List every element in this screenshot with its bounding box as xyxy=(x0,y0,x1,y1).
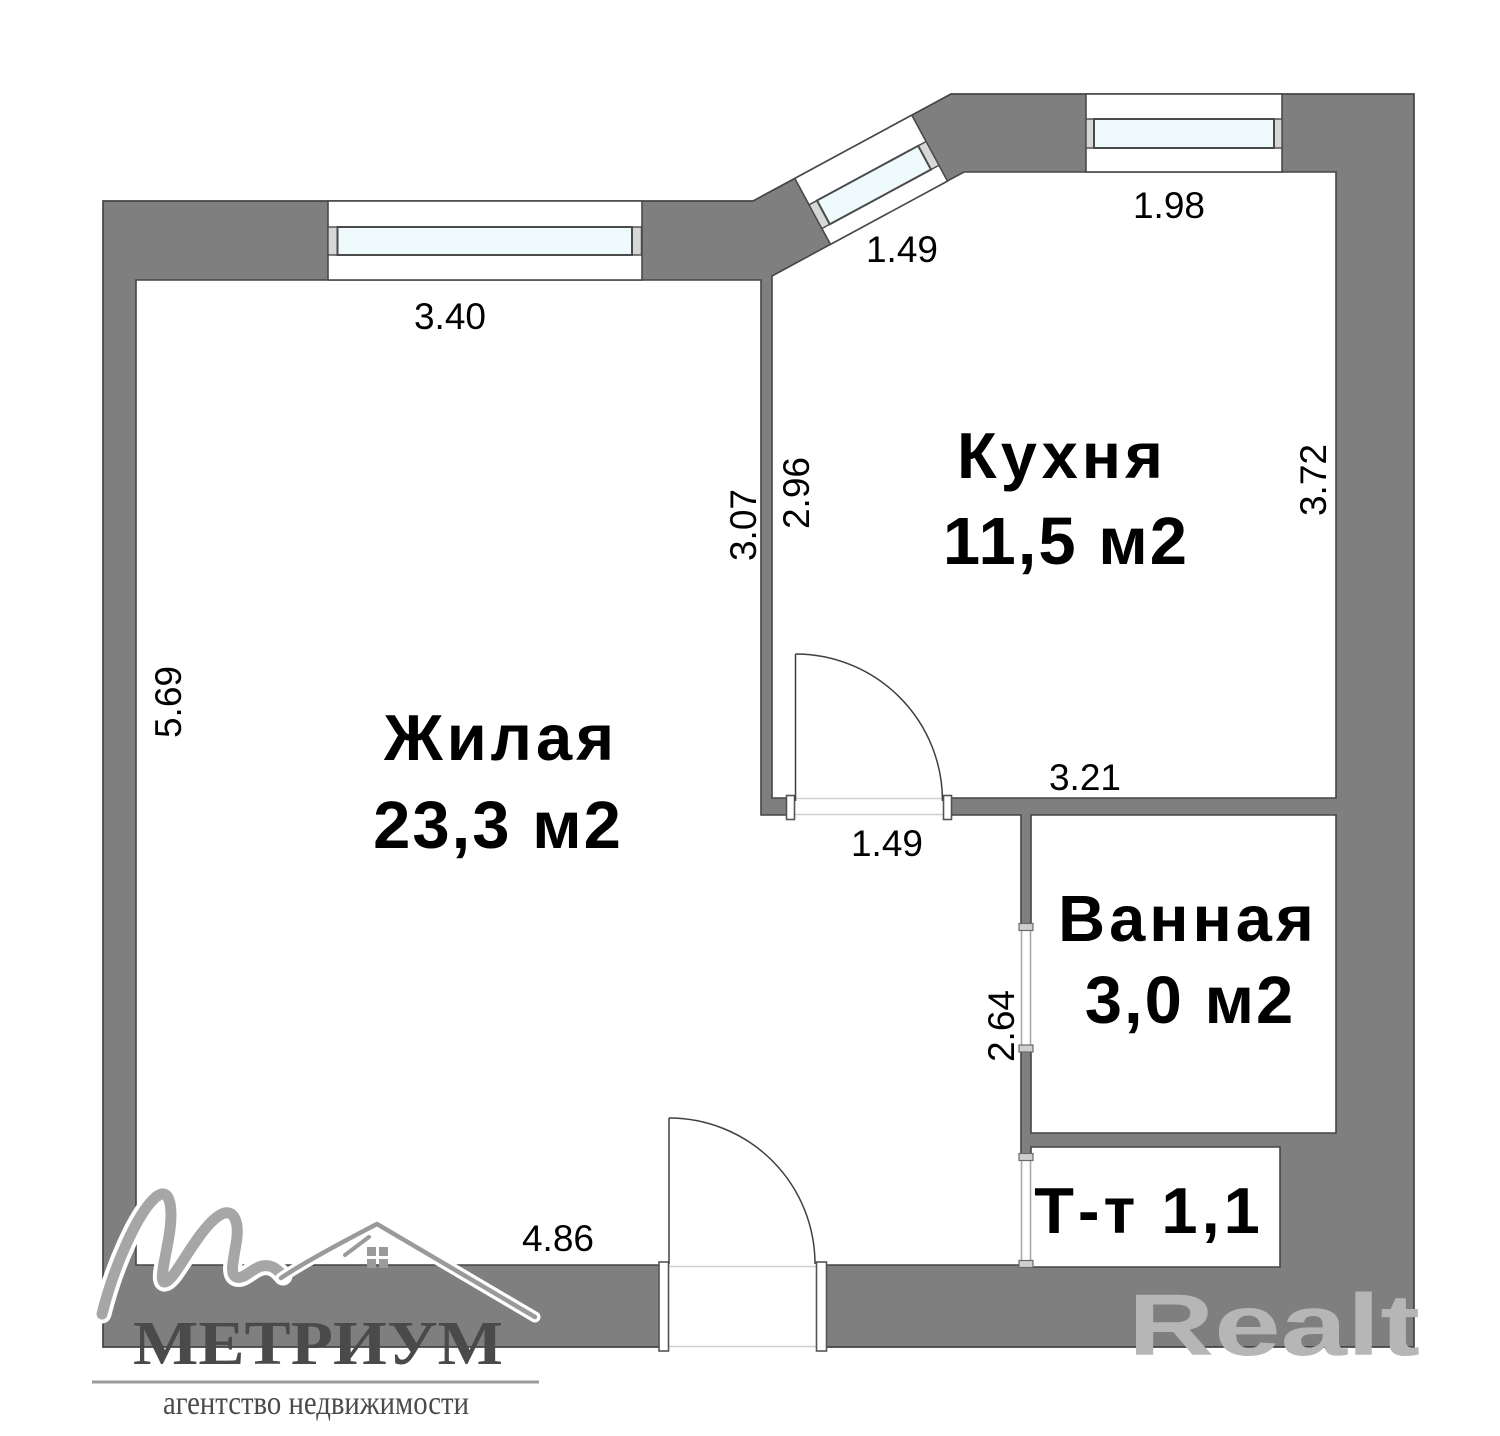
svg-text:4.86: 4.86 xyxy=(522,1218,594,1259)
svg-text:11,5 м2: 11,5 м2 xyxy=(943,504,1189,579)
svg-text:агентство недвижимости: агентство недвижимости xyxy=(163,1385,469,1422)
svg-text:3,0 м2: 3,0 м2 xyxy=(1085,963,1296,1038)
svg-text:2.96: 2.96 xyxy=(776,457,817,529)
svg-text:2.64: 2.64 xyxy=(981,990,1022,1062)
svg-text:23,3 м2: 23,3 м2 xyxy=(373,788,623,863)
svg-text:5.69: 5.69 xyxy=(148,666,189,738)
svg-text:1.49: 1.49 xyxy=(866,229,938,270)
svg-text:МЕТРИУМ: МЕТРИУМ xyxy=(133,1310,503,1378)
svg-text:3.21: 3.21 xyxy=(1049,757,1121,798)
svg-text:Realt: Realt xyxy=(1128,1277,1420,1374)
svg-text:1.98: 1.98 xyxy=(1133,185,1205,226)
svg-text:3.72: 3.72 xyxy=(1293,444,1334,516)
svg-text:3.07: 3.07 xyxy=(723,489,764,561)
svg-text:3.40: 3.40 xyxy=(414,296,486,337)
svg-text:Кухня: Кухня xyxy=(957,419,1167,492)
svg-text:Ванная: Ванная xyxy=(1058,882,1318,955)
svg-text:Жилая: Жилая xyxy=(383,701,618,774)
svg-text:1.49: 1.49 xyxy=(851,823,923,864)
svg-text:Т-т 1,1: Т-т 1,1 xyxy=(1034,1174,1264,1247)
